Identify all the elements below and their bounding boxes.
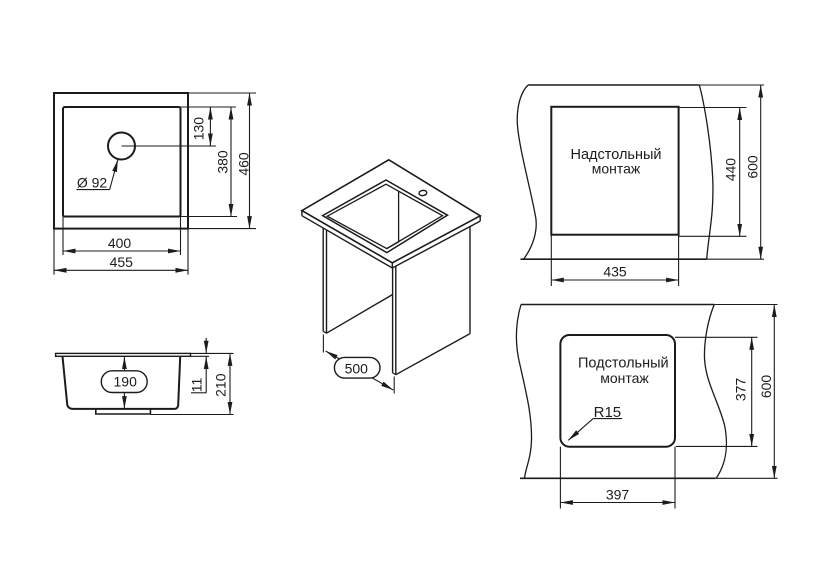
svg-text:440: 440 [723,158,739,182]
svg-text:377: 377 [732,378,748,402]
svg-text:397: 397 [606,487,630,503]
svg-text:210: 210 [213,373,229,397]
svg-text:460: 460 [236,152,252,176]
svg-text:130: 130 [190,117,206,141]
svg-text:11: 11 [189,378,205,393]
svg-text:монтаж: монтаж [592,161,641,177]
svg-text:500: 500 [345,360,369,376]
svg-text:400: 400 [108,235,132,251]
svg-text:435: 435 [603,264,627,280]
svg-text:монтаж: монтаж [600,370,649,386]
svg-text:380: 380 [214,150,230,174]
svg-text:455: 455 [110,254,134,270]
svg-text:600: 600 [758,375,774,399]
svg-text:600: 600 [744,155,760,179]
svg-text:190: 190 [114,373,138,389]
svg-text:Подстольный: Подстольный [578,355,669,371]
svg-text:Ø 92: Ø 92 [77,174,108,190]
